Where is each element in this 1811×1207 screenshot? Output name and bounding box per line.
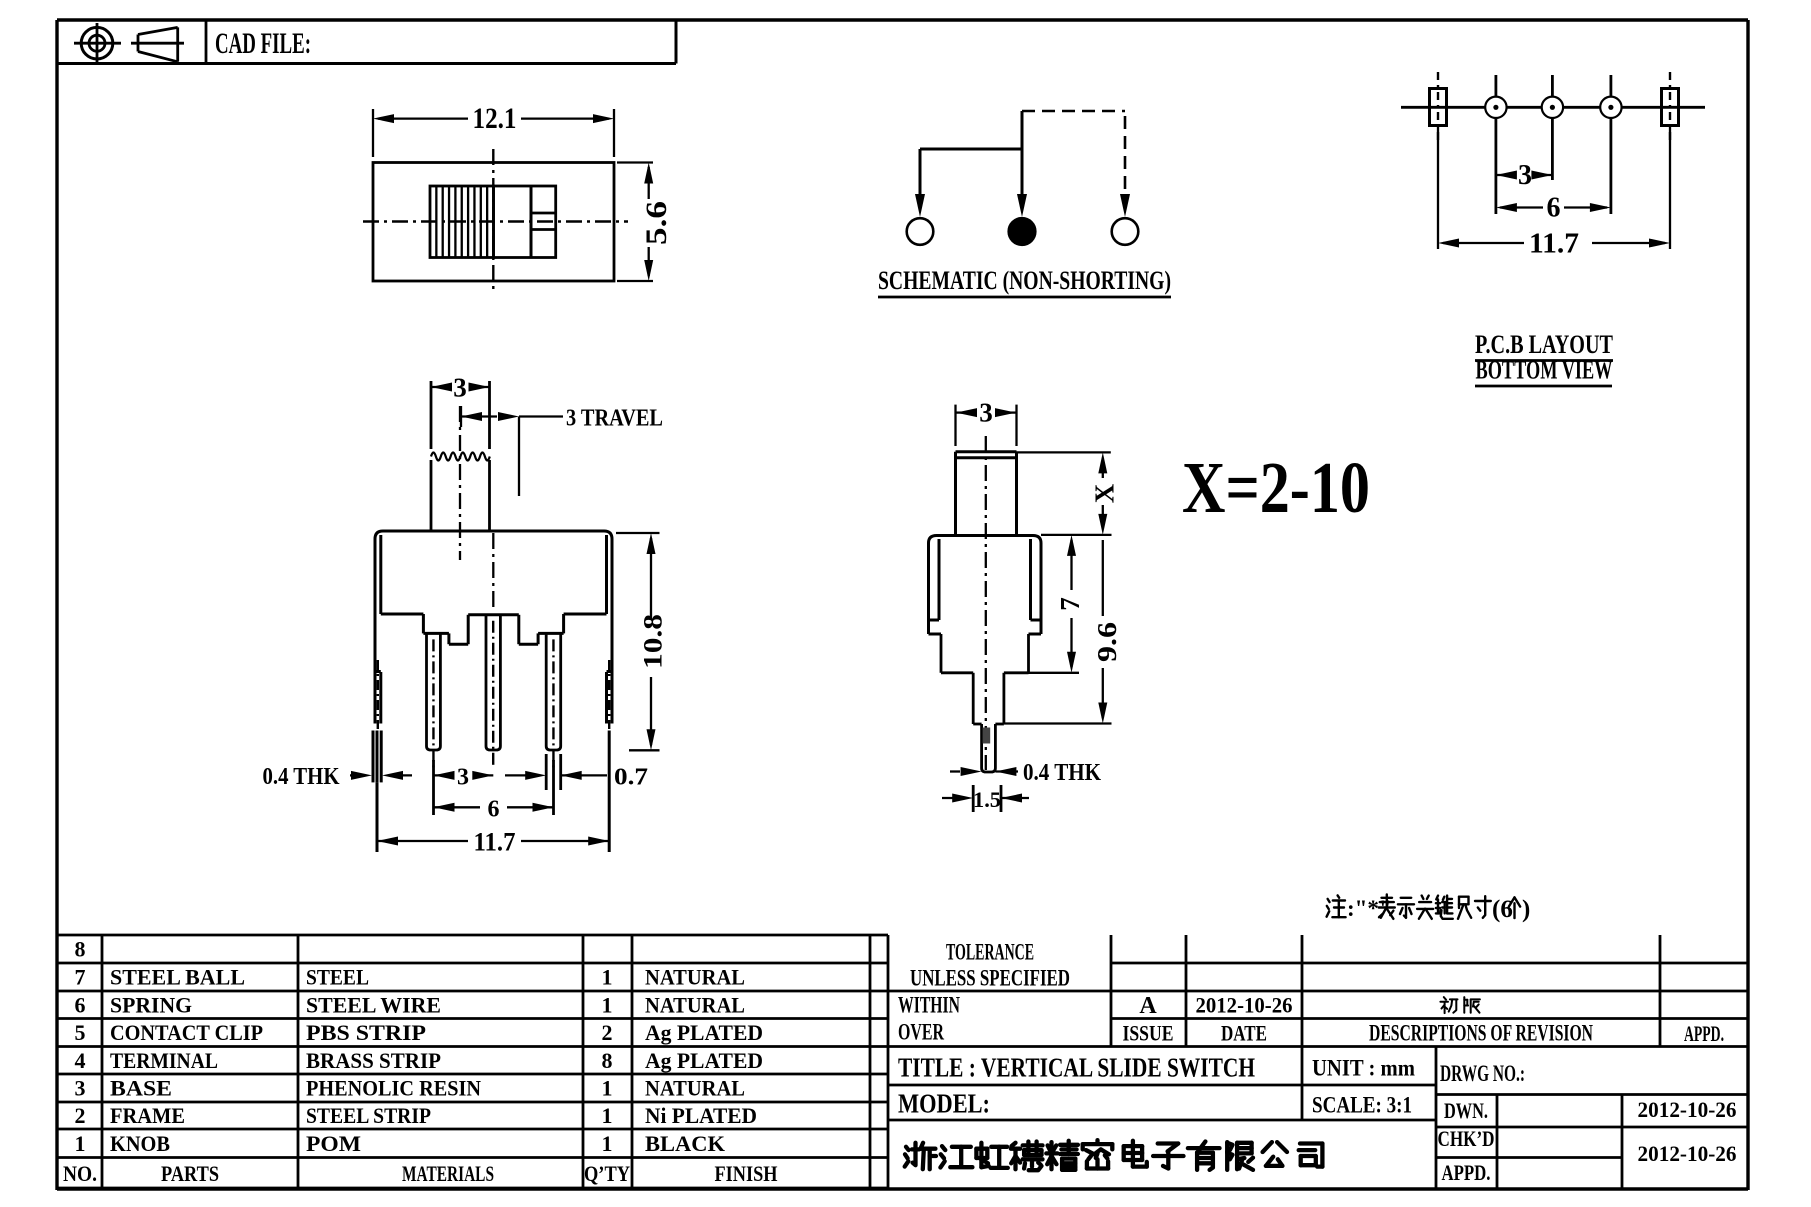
svg-text:3: 3 <box>1518 160 1532 191</box>
svg-text:10.8: 10.8 <box>639 614 668 669</box>
svg-text:2012-10-26: 2012-10-26 <box>1196 993 1293 1018</box>
svg-text:X: X <box>1090 483 1120 503</box>
svg-text:5: 5 <box>75 1020 86 1045</box>
svg-text:STEEL: STEEL <box>306 965 369 990</box>
svg-text:APPD.: APPD. <box>1442 1160 1491 1185</box>
svg-text:1: 1 <box>602 965 613 990</box>
svg-text:Ag PLATED: Ag PLATED <box>645 1048 763 1073</box>
svg-text:3: 3 <box>457 765 469 791</box>
svg-text:1.5: 1.5 <box>973 787 1001 812</box>
svg-text:BLACK: BLACK <box>645 1131 725 1156</box>
svg-text:3: 3 <box>453 373 467 403</box>
svg-text:CAD FILE:: CAD FILE: <box>215 27 311 60</box>
svg-text:1: 1 <box>602 992 613 1017</box>
svg-text:BASE: BASE <box>110 1076 172 1101</box>
svg-text:POM: POM <box>306 1131 361 1156</box>
svg-text:SPRING: SPRING <box>110 992 192 1017</box>
svg-text:8: 8 <box>602 1048 613 1073</box>
svg-text:1: 1 <box>75 1131 86 1156</box>
svg-text:2: 2 <box>602 1020 613 1045</box>
svg-text:STEEL WIRE: STEEL WIRE <box>306 992 441 1017</box>
svg-text:2012-10-26: 2012-10-26 <box>1638 1097 1737 1122</box>
svg-text:MODEL:: MODEL: <box>898 1089 990 1119</box>
svg-text:3 TRAVEL: 3 TRAVEL <box>566 406 663 432</box>
svg-text:NATURAL: NATURAL <box>645 1076 745 1101</box>
svg-text:X=2-10: X=2-10 <box>1182 447 1370 528</box>
svg-text:STEEL BALL: STEEL BALL <box>110 965 245 990</box>
svg-text:12.1: 12.1 <box>473 102 517 135</box>
svg-text:TOLERANCE: TOLERANCE <box>946 940 1034 965</box>
svg-text:11.7: 11.7 <box>1529 229 1579 260</box>
svg-text:PHENOLIC RESIN: PHENOLIC RESIN <box>306 1076 481 1101</box>
svg-text:DESCRIPTIONS OF REVISION: DESCRIPTIONS OF REVISION <box>1369 1021 1593 1046</box>
svg-text:FINISH: FINISH <box>715 1161 778 1186</box>
svg-text:7: 7 <box>75 965 86 990</box>
svg-text:0.4 THK: 0.4 THK <box>263 764 340 790</box>
svg-text:WITHIN: WITHIN <box>898 993 960 1018</box>
svg-text:BRASS STRIP: BRASS STRIP <box>306 1048 441 1073</box>
svg-text:1: 1 <box>602 1131 613 1156</box>
svg-text:6: 6 <box>75 992 86 1017</box>
svg-text:PBS STRIP: PBS STRIP <box>306 1020 426 1045</box>
svg-text:9.6: 9.6 <box>1092 622 1122 662</box>
svg-text:7: 7 <box>1055 597 1085 611</box>
svg-text:ISSUE: ISSUE <box>1123 1021 1174 1046</box>
svg-text:6: 6 <box>488 797 500 823</box>
svg-text:8: 8 <box>75 937 86 962</box>
svg-text:UNIT : mm: UNIT : mm <box>1312 1056 1415 1081</box>
svg-text:0.4 THK: 0.4 THK <box>1023 760 1101 786</box>
svg-text:Ni PLATED: Ni PLATED <box>645 1103 757 1128</box>
svg-text:3: 3 <box>75 1076 86 1101</box>
svg-text:4: 4 <box>75 1048 86 1073</box>
svg-text:PARTS: PARTS <box>161 1161 219 1186</box>
svg-text:NO.: NO. <box>63 1161 97 1186</box>
svg-text:2012-10-26: 2012-10-26 <box>1638 1141 1737 1166</box>
svg-text:5.6: 5.6 <box>640 201 673 245</box>
svg-text:NATURAL: NATURAL <box>645 992 745 1017</box>
svg-text:Q’TY: Q’TY <box>584 1161 630 1186</box>
svg-text:FRAME: FRAME <box>110 1103 185 1128</box>
svg-text:Ag PLATED: Ag PLATED <box>645 1020 763 1045</box>
svg-text:OVER: OVER <box>898 1020 944 1045</box>
svg-text:SCHEMATIC (NON-SHORTING): SCHEMATIC (NON-SHORTING) <box>878 266 1171 295</box>
svg-text:3: 3 <box>979 398 993 428</box>
svg-text:MATERIALS: MATERIALS <box>402 1161 494 1186</box>
svg-text:): ) <box>1522 896 1530 923</box>
svg-text:CHK’D: CHK’D <box>1438 1126 1495 1151</box>
svg-text:UNLESS SPECIFIED: UNLESS SPECIFIED <box>910 966 1070 991</box>
svg-text:A: A <box>1139 993 1157 1019</box>
svg-text:2: 2 <box>75 1103 86 1128</box>
svg-text:STEEL STRIP: STEEL STRIP <box>306 1103 431 1128</box>
svg-text:APPD.: APPD. <box>1684 1021 1724 1046</box>
svg-text:1: 1 <box>602 1076 613 1101</box>
svg-text:11.7: 11.7 <box>474 828 516 857</box>
svg-text:TERMINAL: TERMINAL <box>110 1048 218 1073</box>
svg-text:TITLE : VERTICAL SLIDE SW: TITLE : VERTICAL SLIDE SWITCH <box>898 1053 1255 1083</box>
svg-text:DWN.: DWN. <box>1444 1098 1488 1123</box>
svg-text:KNOB: KNOB <box>110 1131 170 1156</box>
svg-text:1: 1 <box>602 1103 613 1128</box>
svg-text:(6: (6 <box>1492 896 1513 923</box>
svg-text:NATURAL: NATURAL <box>645 965 745 990</box>
svg-text:6: 6 <box>1547 193 1561 224</box>
svg-text:SCALE: 3:1: SCALE: 3:1 <box>1312 1093 1412 1118</box>
svg-text:DATE: DATE <box>1221 1021 1267 1046</box>
svg-text:DRWG NO.:: DRWG NO.: <box>1440 1061 1525 1086</box>
svg-text:0.7: 0.7 <box>614 765 648 791</box>
svg-text:CONTACT CLIP: CONTACT CLIP <box>110 1020 263 1045</box>
svg-text:BOTTOM VIEW: BOTTOM VIEW <box>1476 356 1613 385</box>
